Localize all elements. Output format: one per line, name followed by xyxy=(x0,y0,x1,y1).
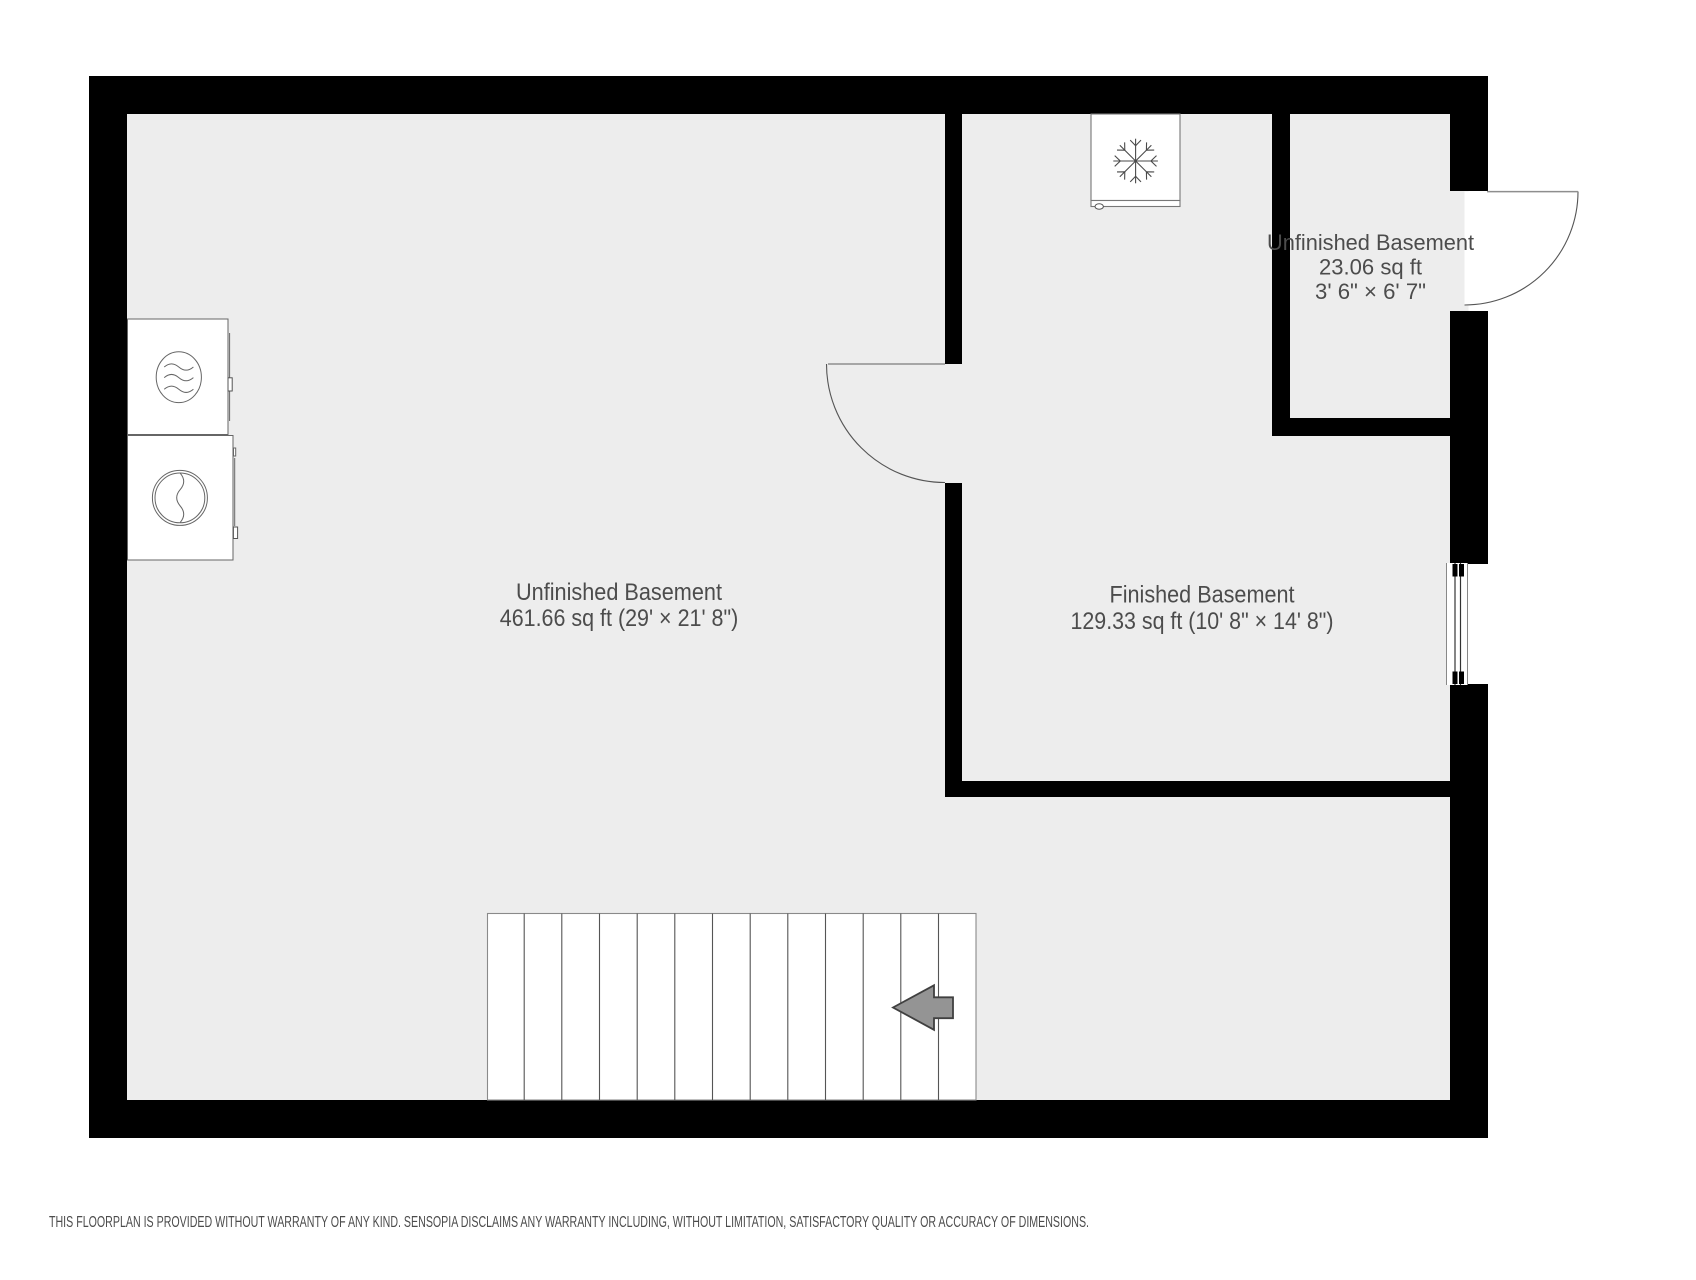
svg-text:23.06 sq ft: 23.06 sq ft xyxy=(1319,255,1422,280)
svg-text:461.66 sq ft (29' × 21' 8"): 461.66 sq ft (29' × 21' 8") xyxy=(500,605,739,632)
svg-text:THIS FLOORPLAN IS PROVIDED WIT: THIS FLOORPLAN IS PROVIDED WITHOUT WARRA… xyxy=(49,1214,1089,1231)
svg-text:Unfinished Basement: Unfinished Basement xyxy=(1267,230,1474,255)
svg-text:129.33 sq ft (10' 8" × 14' 8"): 129.33 sq ft (10' 8" × 14' 8") xyxy=(1071,608,1334,635)
svg-text:3' 6" × 6' 7": 3' 6" × 6' 7" xyxy=(1315,279,1426,304)
svg-text:Unfinished Basement: Unfinished Basement xyxy=(516,579,722,606)
svg-text:Finished Basement: Finished Basement xyxy=(1110,582,1295,609)
